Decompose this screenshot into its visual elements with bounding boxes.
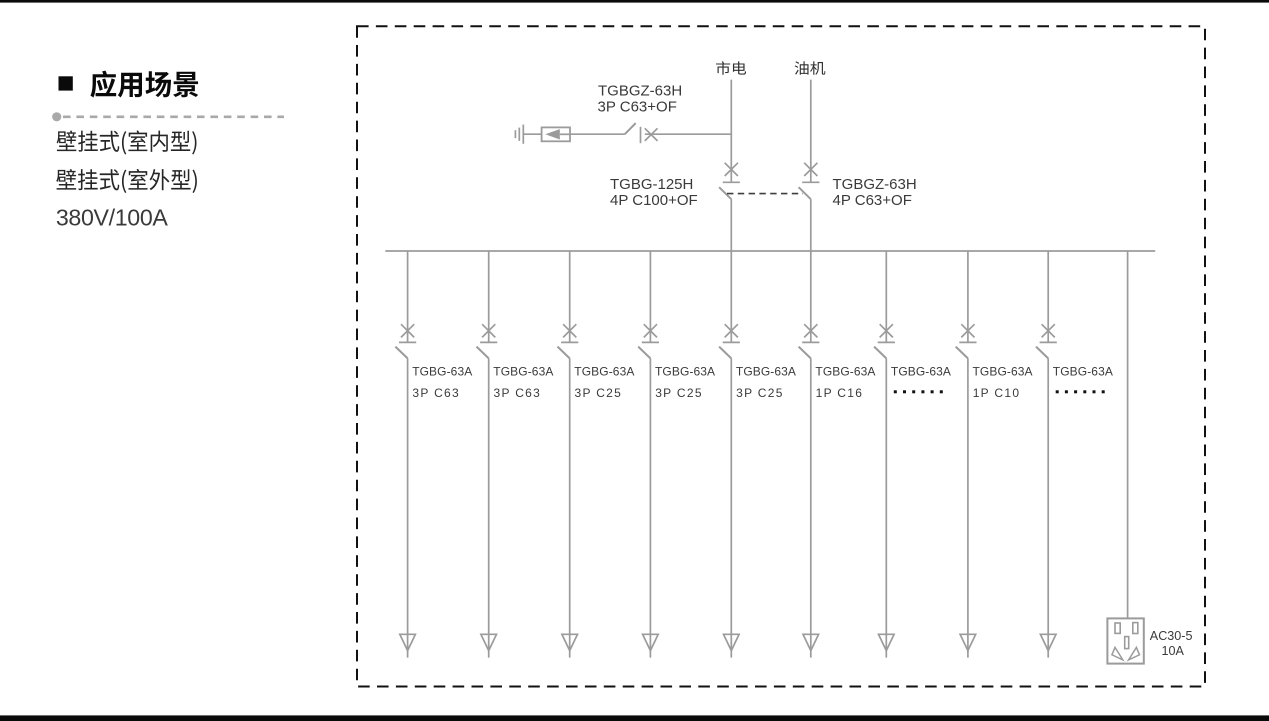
svg-text:10A: 10A — [1162, 644, 1185, 658]
svg-text:3P C63+OF: 3P C63+OF — [598, 99, 677, 116]
svg-text:TGBG-63A: TGBG-63A — [574, 365, 634, 379]
svg-text:4P C100+OF: 4P C100+OF — [610, 192, 698, 209]
svg-text:TGBG-63A: TGBG-63A — [891, 365, 951, 379]
svg-text:4P C63+OF: 4P C63+OF — [833, 192, 912, 209]
svg-text:TGBG-63A: TGBG-63A — [412, 365, 472, 379]
svg-text:AC30-5: AC30-5 — [1150, 629, 1193, 643]
svg-text:3P C25: 3P C25 — [575, 386, 623, 400]
svg-text:TGBG-63A: TGBG-63A — [1053, 365, 1113, 379]
svg-text:1P C10: 1P C10 — [973, 386, 1021, 400]
svg-text:3P C25: 3P C25 — [736, 386, 784, 400]
svg-text:380V/100A: 380V/100A — [56, 205, 168, 231]
svg-text:TGBGZ-63H: TGBGZ-63H — [598, 83, 682, 100]
svg-text:TGBG-63A: TGBG-63A — [736, 365, 796, 379]
svg-text:3P C63: 3P C63 — [494, 386, 542, 400]
svg-text:1P C16: 1P C16 — [816, 386, 864, 400]
svg-text:TGBGZ-63H: TGBGZ-63H — [833, 176, 917, 193]
svg-text:TGBG-63A: TGBG-63A — [493, 365, 553, 379]
svg-text:TGBG-63A: TGBG-63A — [655, 365, 715, 379]
svg-text:TGBG-63A: TGBG-63A — [815, 365, 875, 379]
svg-text:TGBG-63A: TGBG-63A — [973, 365, 1033, 379]
svg-text:3P C25: 3P C25 — [655, 386, 703, 400]
svg-text:TGBG-125H: TGBG-125H — [610, 176, 693, 193]
svg-text:3P C63: 3P C63 — [412, 386, 460, 400]
